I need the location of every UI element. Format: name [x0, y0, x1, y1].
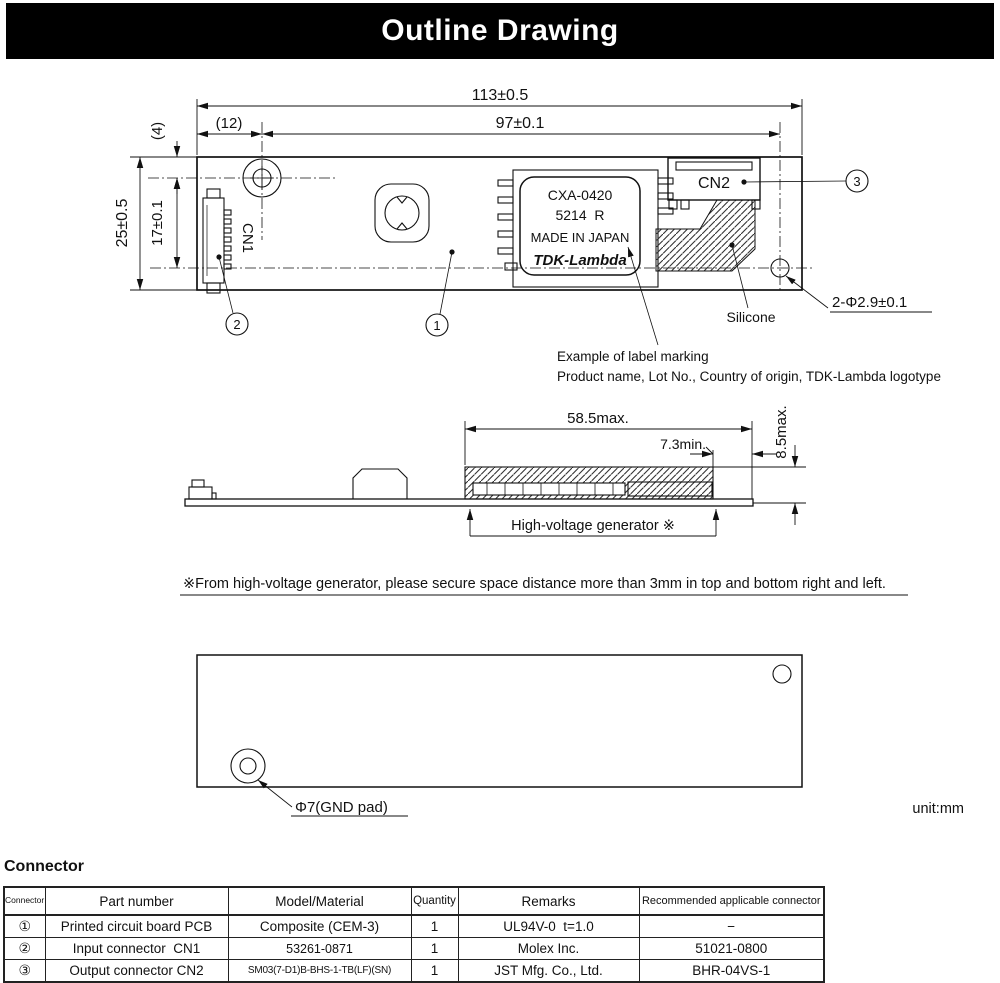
balloon-3-number: 3: [853, 174, 860, 189]
corner-hole-leader: [786, 276, 828, 308]
dim-overall-width-text: 113±0.5: [472, 87, 529, 104]
row3-qty: 1: [411, 960, 458, 983]
connector-table: Connector number Part number Model/Mater…: [3, 886, 825, 983]
table-row-cn2: ③ Output connector CN2 SM03(7-D1)B-BHS-1…: [4, 960, 824, 983]
unit-label: unit:mm: [912, 801, 964, 817]
connector-table-header-row: Connector number Part number Model/Mater…: [4, 887, 824, 915]
col-remarks: Remarks: [458, 887, 639, 915]
dim-height: [713, 445, 806, 525]
row2-model: 53261-0871: [228, 938, 411, 960]
bottom-view-drawing: [197, 655, 802, 816]
dim-height-text: 8.5max.: [773, 405, 790, 458]
product-label-line2: 5214 R: [555, 207, 604, 223]
dim-top-offset: [152, 141, 197, 194]
row2-qty: 1: [411, 938, 458, 960]
outline-drawing-page: Outline Drawing: [0, 0, 1000, 983]
row1-remarks: UL94V-0 t=1.0: [458, 915, 639, 938]
row3-part: Output connector CN2: [45, 960, 228, 983]
side-view-drawing: [185, 421, 806, 536]
pcb-side-profile: [185, 499, 753, 506]
row1-number: ①: [4, 915, 45, 938]
row3-number: ③: [4, 960, 45, 983]
row3-remarks: JST Mfg. Co., Ltd.: [458, 960, 639, 983]
col-connector-number: Connector number: [4, 887, 45, 915]
dim-hole-pitch-text: 97±0.1: [496, 115, 545, 132]
gnd-pad: [231, 749, 265, 783]
row1-model: Composite (CEM-3): [228, 915, 411, 938]
dim-overall-height-text: 25±0.5: [114, 198, 131, 247]
product-label-line3: MADE IN JAPAN: [531, 230, 630, 245]
row3-recommended: BHR-04VS-1: [639, 960, 824, 983]
connector-section-heading: Connector: [4, 858, 84, 876]
silicone-label: Silicone: [726, 309, 775, 325]
row3-model: SM03(7-D1)B-BHS-1-TB(LF)(SN): [228, 960, 411, 983]
row2-number: ②: [4, 938, 45, 960]
row2-recommended: 51021-0800: [639, 938, 824, 960]
cn1-connector: [203, 189, 231, 293]
cn2-label: CN2: [698, 175, 730, 192]
corner-holes-text: 2-Φ2.9±0.1: [832, 294, 907, 311]
label-note-line2: Product name, Lot No., Country of origin…: [557, 369, 941, 384]
gnd-pad-leader: [258, 780, 292, 807]
bottom-hole-top-right: [773, 665, 791, 683]
col-recommended-connector: Recommended applicable connector: [639, 887, 824, 915]
col-quantity: Quantity: [411, 887, 458, 915]
dim-centerline-pitch-text: 17±0.1: [149, 200, 166, 246]
row2-part: Input connector CN1: [45, 938, 228, 960]
col-part-number: Part number: [45, 887, 228, 915]
row1-part: Printed circuit board PCB: [45, 915, 228, 938]
gnd-pad-label: Φ7(GND pad): [295, 799, 388, 816]
tdk-lambda-logotype: TDK-Lambda: [533, 252, 626, 269]
cn1-label: CN1: [239, 223, 256, 253]
silicone-area: [656, 200, 755, 271]
row1-qty: 1: [411, 915, 458, 938]
label-note-line1: Example of label marking: [557, 349, 709, 364]
hv-generator-label: High-voltage generator ※: [511, 518, 675, 534]
balloon-1-number: 1: [433, 318, 440, 333]
side-transformer-profile: [353, 469, 407, 499]
top-view-texts: 113±0.5 97±0.1 (12) (4) 25±0.5 17±0.1 CN…: [114, 87, 941, 384]
dim-top-offset-text: (4): [149, 122, 166, 140]
drawing-canvas: 113±0.5 97±0.1 (12) (4) 25±0.5 17±0.1 CN…: [0, 0, 1000, 852]
row2-remarks: Molex Inc.: [458, 938, 639, 960]
dim-edge-clearance-text: 7.3min.: [660, 436, 706, 452]
col-model-material: Model/Material: [228, 887, 411, 915]
dim-left-offset-text: (12): [216, 115, 243, 132]
side-hv-generator-block: [465, 467, 713, 499]
label-example-leader: [628, 247, 658, 345]
table-row-pcb: ① Printed circuit board PCB Composite (C…: [4, 915, 824, 938]
side-cn1-profile: [189, 480, 216, 499]
transformer-hole: [375, 184, 429, 242]
product-label-line1: CXA-0420: [548, 187, 613, 203]
pcb-outline-bottom-view: [197, 655, 802, 787]
row1-recommended: −: [639, 915, 824, 938]
table-row-cn1: ② Input connector CN1 53261-0871 1 Molex…: [4, 938, 824, 960]
dim-hv-width-text: 58.5max.: [567, 410, 629, 427]
balloon-2-number: 2: [233, 317, 240, 332]
hv-clearance-note: ※From high-voltage generator, please sec…: [183, 576, 886, 592]
